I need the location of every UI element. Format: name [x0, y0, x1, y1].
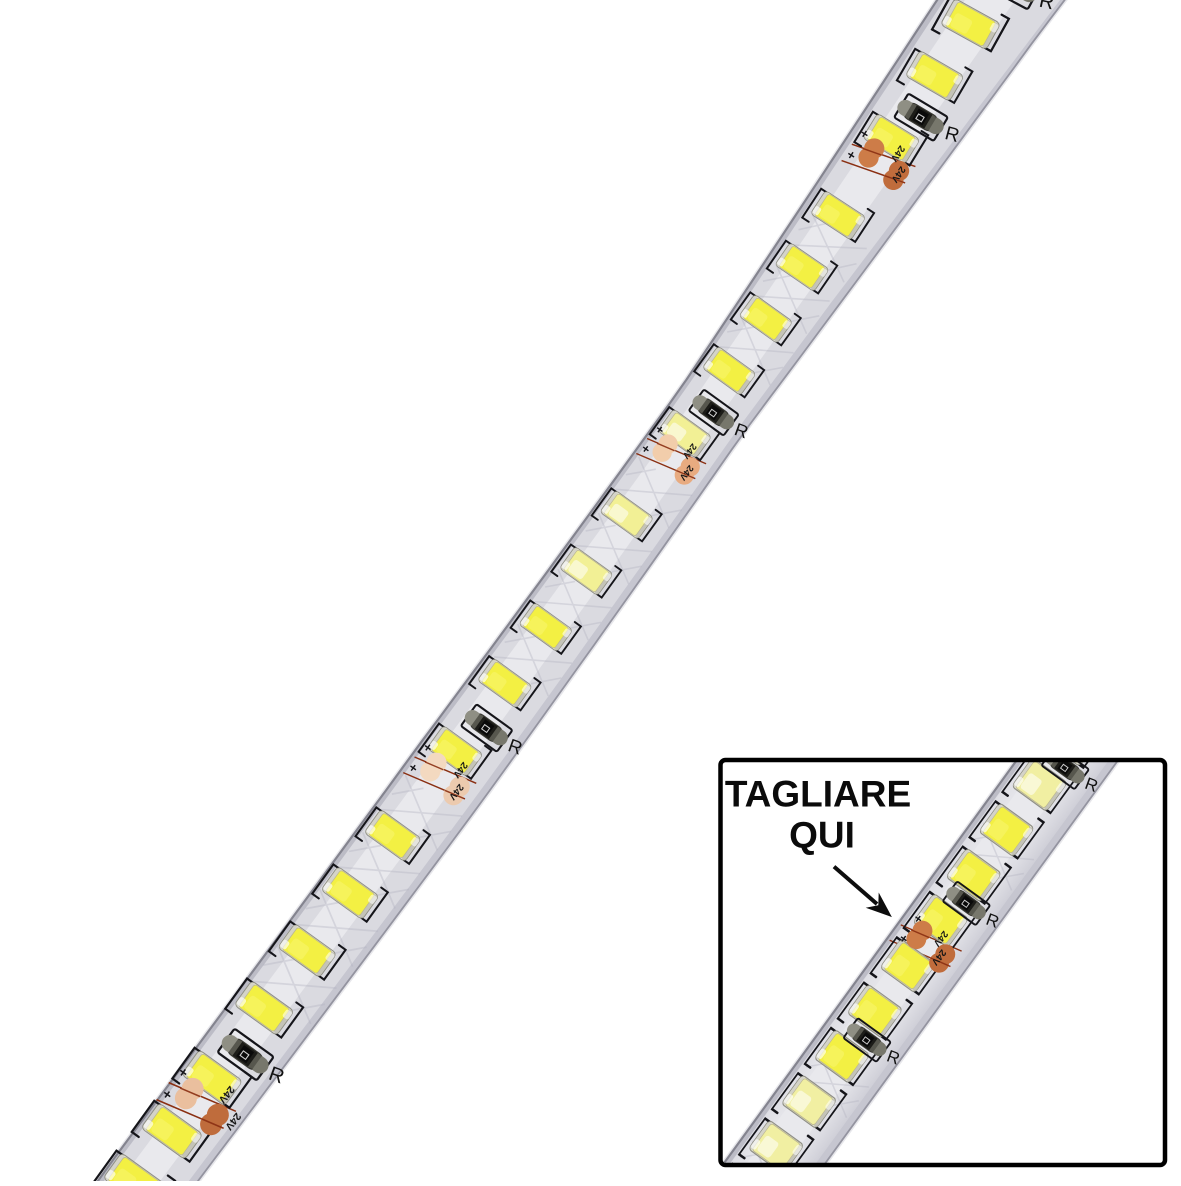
svg-text:QUI: QUI	[789, 815, 855, 856]
svg-text:TAGLIARE: TAGLIARE	[725, 774, 911, 815]
